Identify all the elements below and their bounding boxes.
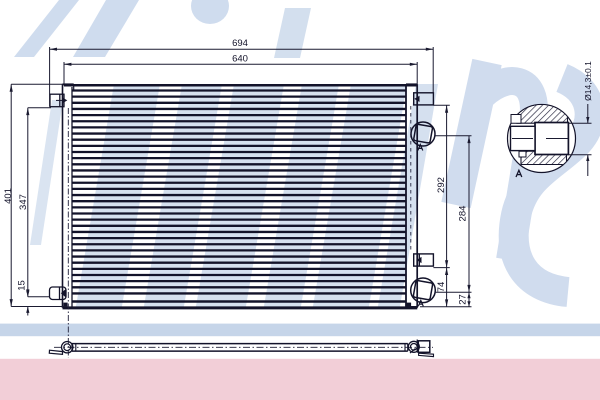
svg-text:284: 284 bbox=[457, 206, 468, 222]
svg-text:Ø14,3±0.1: Ø14,3±0.1 bbox=[583, 61, 593, 101]
svg-text:347: 347 bbox=[18, 194, 29, 210]
svg-text:694: 694 bbox=[232, 38, 248, 49]
svg-text:27: 27 bbox=[457, 294, 468, 305]
svg-text:401: 401 bbox=[3, 188, 14, 204]
svg-text:640: 640 bbox=[232, 53, 248, 64]
svg-text:292: 292 bbox=[436, 177, 447, 193]
svg-text:15: 15 bbox=[16, 280, 27, 291]
svg-text:74: 74 bbox=[436, 282, 447, 293]
